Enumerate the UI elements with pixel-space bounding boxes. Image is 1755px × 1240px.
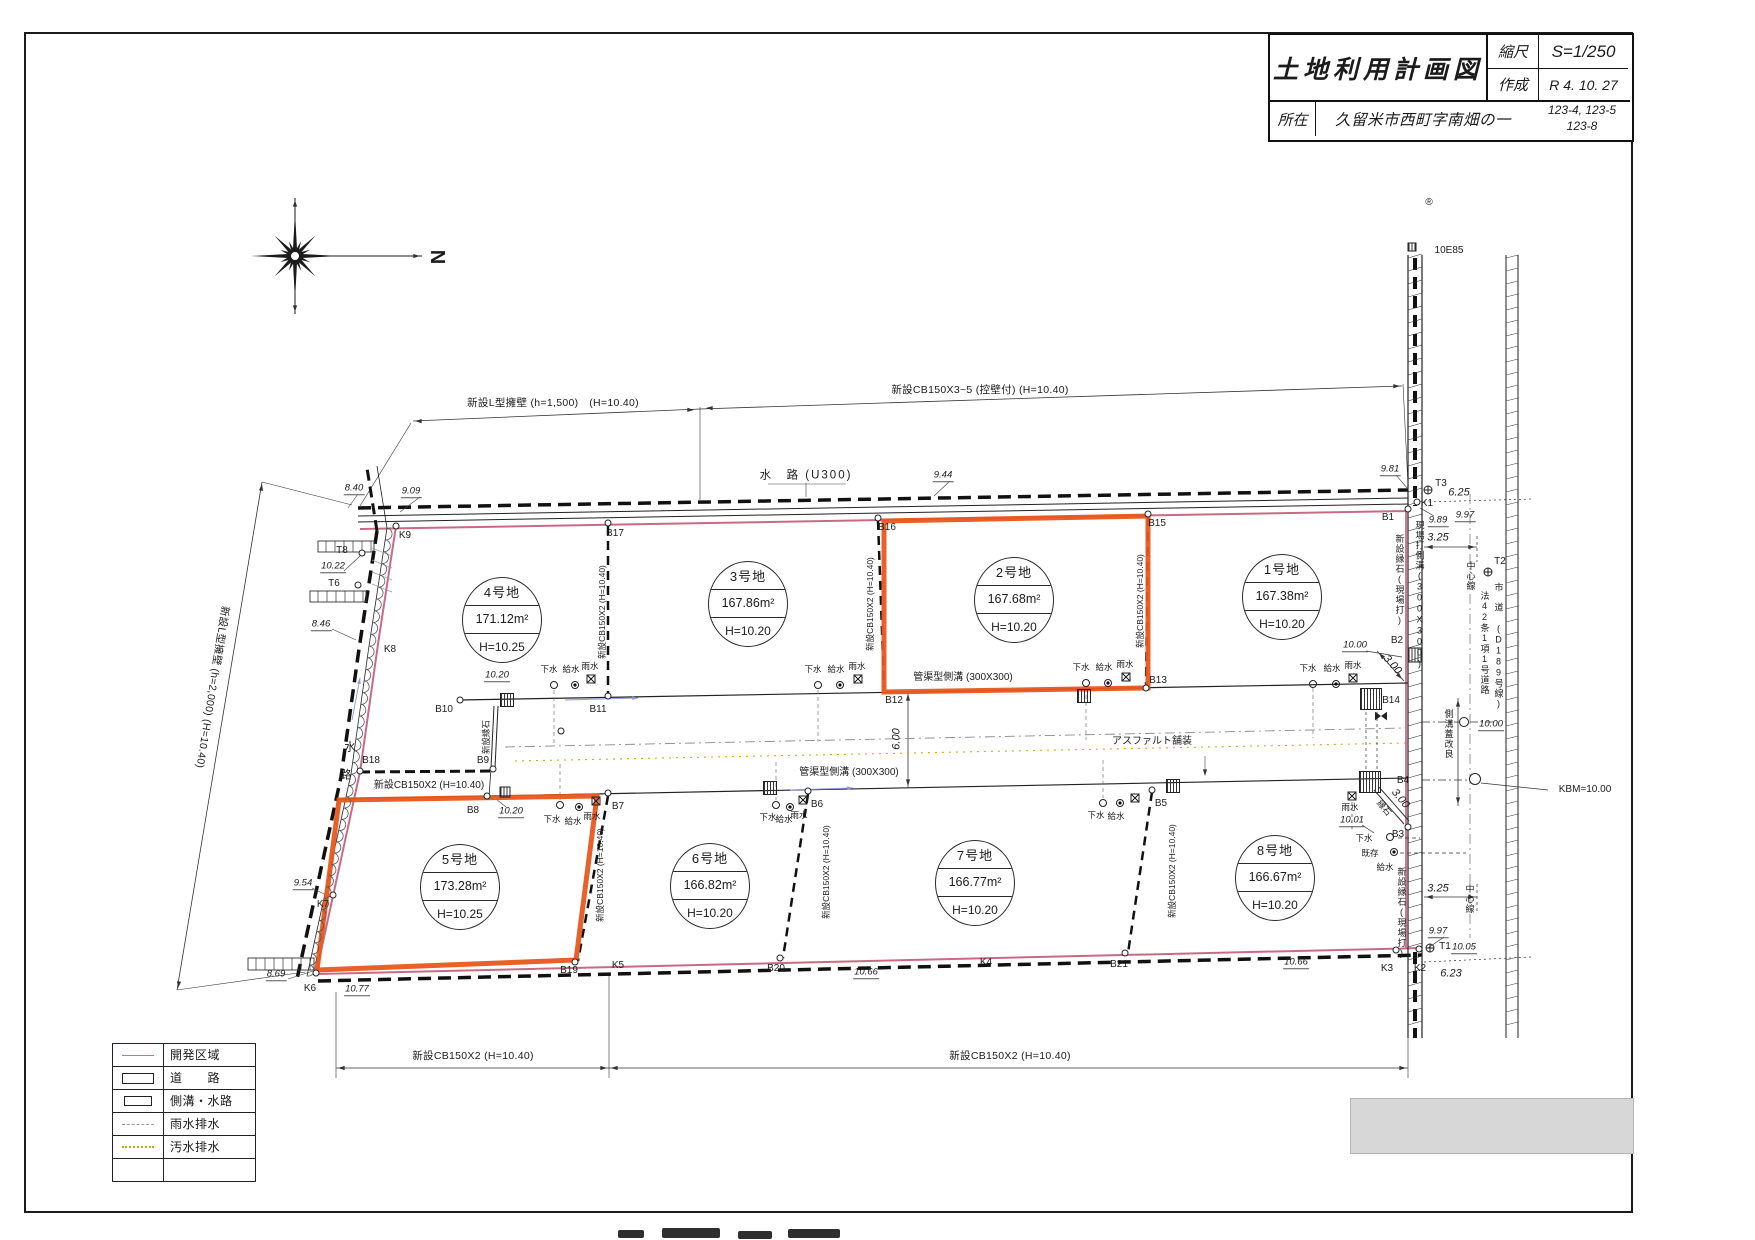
text-label: T8 — [336, 546, 348, 556]
legend-row-0: 開発区域 — [113, 1044, 255, 1066]
text-label: 新設縁石(現場打) — [1395, 534, 1404, 626]
parcel-line-2: 123-8 — [1567, 119, 1598, 135]
text-label: 9.81 — [1380, 464, 1401, 476]
legend-row-5 — [113, 1158, 255, 1181]
text-label: 既存 — [1361, 849, 1378, 858]
text-label: 9.97 — [1455, 510, 1476, 522]
legend-label: 開発区域 — [164, 1044, 255, 1066]
text-label: 3.00 — [1381, 653, 1404, 676]
text-label: 新設CB150X2 (H=10.40) — [866, 557, 875, 651]
text-label: 8.46 — [311, 619, 332, 631]
text-label: B15 — [1148, 519, 1166, 529]
text-label: 雨水 — [581, 662, 598, 671]
legend-boundary-icon — [122, 1055, 154, 1056]
text-label: 10.66 — [853, 967, 879, 979]
legend-rain-icon — [122, 1124, 154, 1125]
text-label: 雨水 — [790, 811, 807, 820]
text-label: B2 — [1391, 636, 1403, 646]
legend-row-1: 道 路 — [113, 1066, 255, 1089]
text-label: B12 — [885, 696, 903, 706]
text-label: 10.66 — [1283, 957, 1309, 969]
text-label: 給水 — [827, 665, 844, 674]
text-label: B14 — [1382, 696, 1400, 706]
compass-north-label: N — [427, 250, 447, 264]
text-label: 新設CB150X2 (H=10.40) — [598, 565, 607, 659]
text-label: 10.77 — [344, 984, 370, 996]
text-label: T3 — [1435, 479, 1447, 489]
text-label: 8.69 — [266, 969, 287, 981]
text-label: 新設CB150X2 (H=10.40) — [374, 781, 484, 791]
text-label: 9.44 — [933, 470, 954, 482]
legend-sewage-icon — [122, 1146, 154, 1148]
text-label: B10 — [435, 705, 453, 715]
legend-ditch-icon — [124, 1096, 152, 1106]
text-label: B11 — [589, 705, 606, 715]
text-label: 下水 — [1072, 663, 1089, 672]
text-label: 路 — [340, 770, 354, 782]
text-label: B13 — [1149, 676, 1167, 686]
text-label: 下水 — [543, 815, 560, 824]
text-label: 給水 — [564, 817, 581, 826]
date-label: 作成 — [1488, 68, 1538, 100]
text-label: 雨水 — [848, 662, 865, 671]
text-label: K3 — [1381, 964, 1393, 974]
text-label: K1 — [1421, 499, 1433, 509]
text-label: 6.23 — [1440, 969, 1461, 980]
text-label: T6 — [328, 579, 340, 589]
text-label: K4 — [980, 958, 992, 968]
text-label: 法42条1項1号道路 — [1480, 591, 1489, 695]
text-label: 新設CB150X2 (H=10.40) — [596, 828, 605, 922]
legend: 開発区域道 路側溝・水路雨水排水汚水排水 — [112, 1043, 256, 1182]
legend-label: 雨水排水 — [164, 1113, 255, 1135]
text-label: 新設縁石(現場打) — [1397, 867, 1406, 959]
text-label: 3.00 — [1389, 787, 1411, 810]
text-label: 給水 — [1376, 863, 1393, 872]
text-label: 6.00 — [892, 728, 903, 749]
text-label: 新設L型擁壁 (h=2,000) (H=10.40) — [194, 605, 230, 769]
text-label: 市 道 (D189号線) — [1494, 583, 1503, 710]
text-label: 給水 — [562, 665, 579, 674]
text-label: B17 — [606, 529, 624, 539]
text-label: 新設縁石 — [482, 720, 491, 754]
text-label: 新設CB150X2 (H=10.40) — [1168, 824, 1177, 918]
text-label: 3.25 — [1427, 533, 1448, 544]
text-label: 現場打側溝(300X300) — [1415, 521, 1424, 670]
text-label: 雨水 — [583, 812, 600, 821]
text-label: 9.89 — [1428, 515, 1449, 527]
text-label: T2 — [1494, 557, 1506, 567]
label-layer: ®10E85N新設L型擁壁 (h=1,500) (H=10.40)新設CB150… — [0, 0, 1755, 1240]
text-label: B5 — [1155, 799, 1167, 809]
text-label: 新設CB150X3~5 (控壁付) (H=10.40) — [891, 385, 1068, 396]
text-label: 10.20 — [498, 806, 524, 818]
text-label: 3.25 — [1427, 884, 1448, 895]
text-label: B6 — [811, 800, 823, 810]
legend-label: 側溝・水路 — [164, 1090, 255, 1112]
legend-label: 道 路 — [164, 1067, 255, 1089]
text-label: K5 — [612, 961, 624, 971]
drawing-title: 土地利用計画図 — [1270, 35, 1488, 100]
legend-road-icon — [122, 1073, 154, 1084]
text-label: B20 — [767, 964, 785, 974]
text-label: 10.05 — [1451, 942, 1477, 954]
scale-label: 縮尺 — [1488, 35, 1538, 68]
text-label: 9.54 — [293, 878, 314, 890]
text-label: 中心線 — [1465, 884, 1474, 914]
text-label: B7 — [612, 802, 624, 812]
text-label: B1 — [1382, 513, 1394, 523]
text-label: 縁石 — [1375, 799, 1392, 817]
text-label: 新設CB150X2 (H=10.40) — [412, 1051, 534, 1062]
text-label: 雨水 — [1116, 660, 1133, 669]
scale-value: S=1/250 — [1538, 35, 1628, 68]
text-label: 6.25 — [1448, 488, 1469, 499]
text-label: 給水 — [1095, 663, 1112, 672]
text-label: 雨水 — [1344, 661, 1361, 670]
legend-row-3: 雨水排水 — [113, 1112, 255, 1135]
location-label: 所在 — [1270, 100, 1316, 136]
text-label: 10.01 — [1339, 815, 1365, 827]
text-label: K9 — [399, 531, 411, 541]
legend-label: 汚水排水 — [164, 1136, 255, 1158]
stamp-area — [1350, 1098, 1634, 1154]
text-label: B19 — [560, 966, 578, 976]
text-label: K7 — [317, 900, 329, 910]
text-label: 新設CB150X2 (H=10.40) — [822, 825, 831, 919]
text-label: 管渠型側溝 (300X300) — [913, 673, 1012, 683]
text-label: 給水 — [1107, 812, 1124, 821]
text-label: 水 路 (U300) — [760, 470, 853, 482]
text-label: 下水 — [759, 813, 776, 822]
title-block: 土地利用計画図 縮尺 S=1/250 作成 R 4. 10. 27 所在 久留米… — [1268, 33, 1634, 142]
text-label: B9 — [477, 756, 489, 766]
parcel-line-1: 123-4, 123-5 — [1548, 103, 1616, 119]
land-use-plan-sheet: 1号地167.38m²H=10.202号地167.68m²H=10.203号地1… — [0, 0, 1755, 1240]
text-label: 下水 — [1087, 811, 1104, 820]
text-label: 10.00 — [1342, 640, 1368, 652]
text-label: 下水 — [1355, 834, 1372, 843]
text-label: 新設CB150X2 (H=10.40) — [1136, 554, 1145, 648]
text-label: 10E85 — [1435, 246, 1464, 256]
legend-label — [164, 1159, 255, 1181]
text-label: T1 — [1439, 942, 1451, 952]
text-label: B16 — [878, 523, 896, 533]
text-label: 下水 — [804, 665, 821, 674]
text-label: アスファルト舗装 — [1112, 737, 1192, 747]
text-label: 雨水 — [1341, 803, 1358, 812]
text-label: KBM=10.00 — [1559, 785, 1612, 795]
text-label: B3 — [1392, 830, 1404, 840]
text-label: 側溝蓋改良 — [1444, 709, 1453, 759]
text-label: B18 — [362, 756, 380, 766]
text-label: B4 — [1397, 776, 1409, 786]
text-label: 新設CB150X2 (H=10.40) — [949, 1051, 1071, 1062]
text-label: B8 — [467, 806, 479, 816]
text-label: K2 — [1414, 964, 1426, 974]
text-label: 水 — [344, 742, 358, 754]
parcel-numbers: 123-4, 123-5 123-8 — [1530, 100, 1630, 136]
text-label: B21 — [1110, 960, 1128, 970]
text-label: 管渠型側溝 (300X300) — [799, 768, 898, 778]
registration-mark: ® — [1425, 198, 1432, 208]
text-label: K6 — [304, 984, 316, 994]
location-value: 久留米市西町字南畑の一 — [1316, 100, 1530, 136]
date-value: R 4. 10. 27 — [1538, 68, 1628, 100]
text-label: 9.97 — [1428, 926, 1449, 938]
legend-row-2: 側溝・水路 — [113, 1089, 255, 1112]
text-label: 下水 — [540, 665, 557, 674]
text-label: 9.09 — [401, 486, 422, 498]
text-label: 中心線 — [1466, 561, 1475, 591]
text-label: 10.20 — [484, 670, 510, 682]
text-label: 8.40 — [344, 483, 365, 495]
legend-row-4: 汚水排水 — [113, 1135, 255, 1158]
text-label: 10.00 — [1478, 719, 1504, 731]
text-label: 新設L型擁壁 (h=1,500) (H=10.40) — [467, 398, 639, 409]
text-label: 給水 — [1323, 664, 1340, 673]
text-label: 下水 — [1299, 664, 1316, 673]
text-label: K8 — [384, 645, 396, 655]
text-label: 10.22 — [320, 561, 346, 573]
